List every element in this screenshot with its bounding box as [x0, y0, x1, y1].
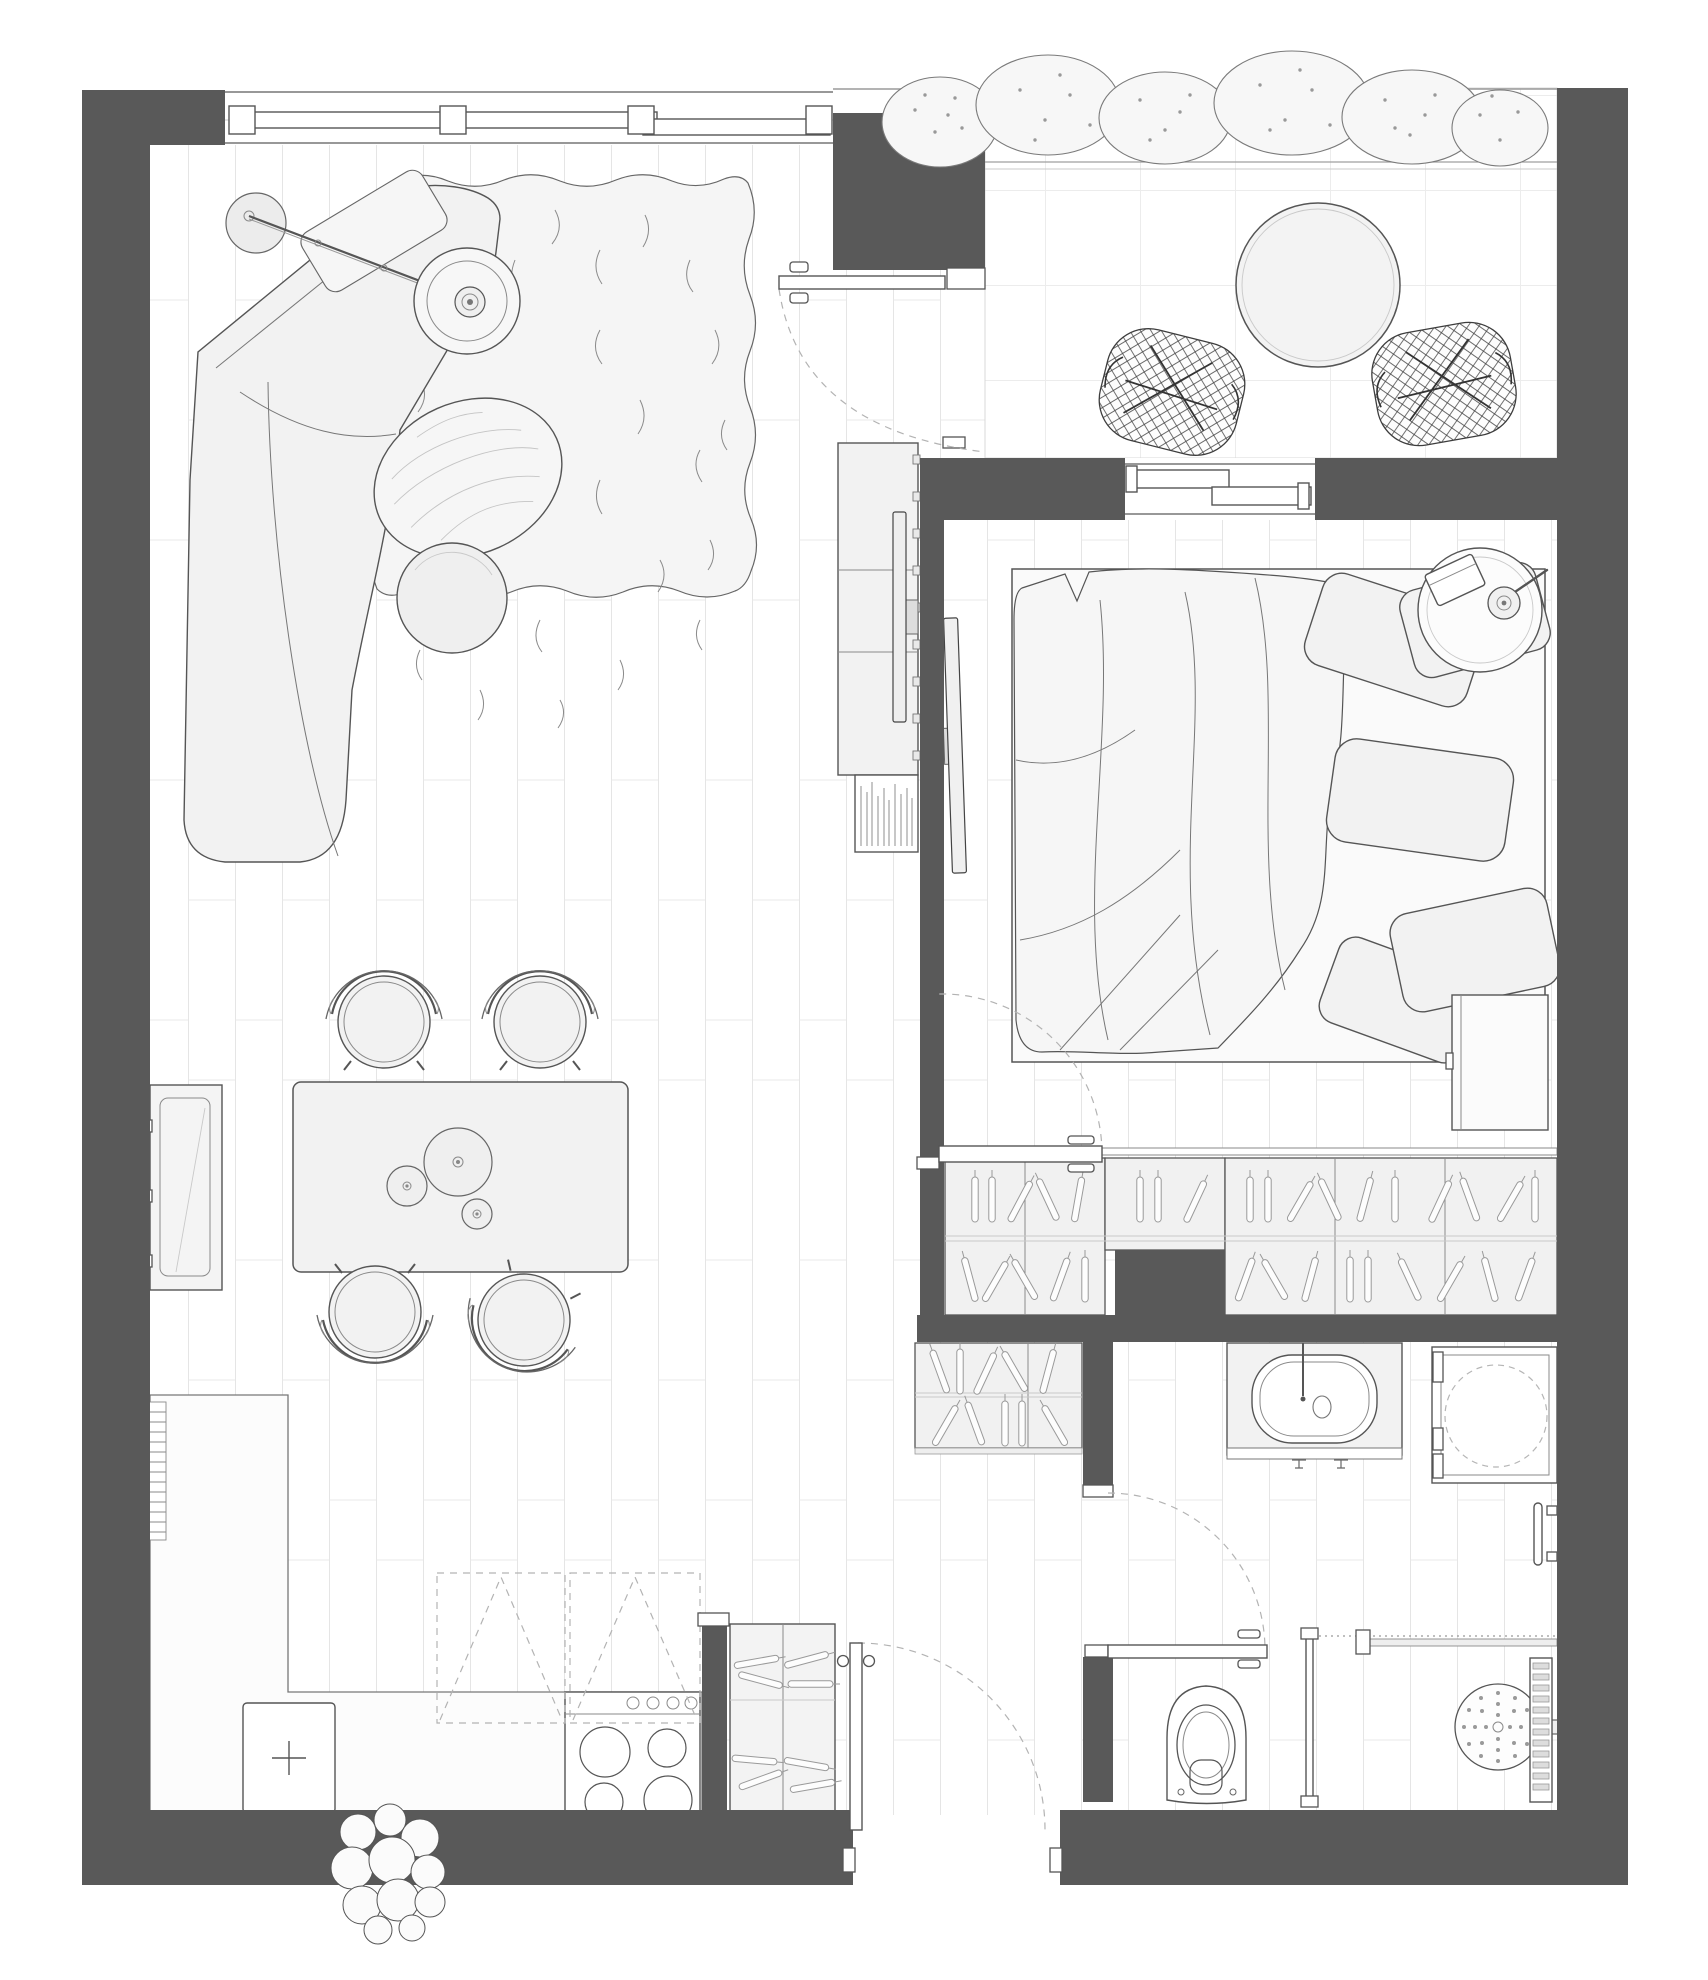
- wall-wc: [1083, 1657, 1113, 1802]
- washing-machine: [1432, 1347, 1557, 1483]
- door-knob: [838, 1656, 849, 1667]
- shower-screen-bar: [1360, 1639, 1557, 1646]
- door-handle: [1068, 1136, 1094, 1144]
- wall-under-wardrobe: [917, 1315, 1557, 1342]
- door-handle: [790, 262, 808, 272]
- round-side-table: [397, 543, 507, 653]
- wall-bottom-right: [1060, 1810, 1628, 1885]
- glass-partition: [1306, 1633, 1313, 1803]
- door-handle: [1238, 1630, 1260, 1638]
- wall-balcony-bedroom-right: [1315, 458, 1557, 520]
- book-shelf: [855, 775, 918, 852]
- door-leaf: [779, 276, 945, 289]
- lamp-shade: [414, 248, 520, 354]
- wall-heater-panel: [145, 1085, 222, 1290]
- floor-plan-drawing: [0, 0, 1708, 1980]
- vanity-basin: [1227, 1343, 1402, 1468]
- kitchen-plant: [331, 1804, 445, 1944]
- wall-wardrobe-pillar: [1115, 1250, 1225, 1342]
- wc: [1167, 1686, 1246, 1804]
- kitchen-sink: [243, 1703, 335, 1813]
- wall-hall-bath: [1083, 1341, 1113, 1492]
- tv-bracket: [906, 600, 918, 634]
- cooktop: [565, 1692, 700, 1827]
- lamp-base: [226, 193, 286, 253]
- hanger-icon: [788, 1681, 840, 1687]
- door-handle: [790, 293, 808, 303]
- bedroom: [940, 548, 1564, 1130]
- toilet: [1167, 1686, 1246, 1804]
- wall-balcony-bedroom-left: [920, 458, 1125, 520]
- wall-living-bedroom: [920, 520, 944, 1315]
- round-bistro-table: [1236, 203, 1400, 367]
- wall-kitchen-stub: [702, 1624, 727, 1828]
- door-leaf: [850, 1643, 862, 1830]
- radiator: [148, 1402, 166, 1540]
- tv-sideboard: [838, 443, 920, 775]
- door-handle: [1068, 1164, 1094, 1172]
- wall-right: [1557, 88, 1628, 1885]
- wall-top-left: [82, 90, 225, 145]
- wall-bottom-left: [82, 1810, 853, 1885]
- bedroom-window: [1125, 458, 1315, 520]
- door-handle: [1238, 1660, 1260, 1668]
- living-room-window: [225, 90, 833, 145]
- wardrobe-section: [1225, 1158, 1557, 1315]
- dresser-handle: [1446, 1053, 1453, 1069]
- door-leaf: [1108, 1645, 1267, 1658]
- drain-grate: [1530, 1658, 1552, 1802]
- hall-wardrobe: [915, 1342, 1082, 1454]
- entry-closet: [730, 1624, 842, 1826]
- wall-left: [82, 90, 150, 1885]
- floor-plan-page: [0, 0, 1708, 1980]
- dresser: [1446, 995, 1548, 1130]
- door-knob: [864, 1656, 875, 1667]
- tv: [893, 512, 906, 722]
- door-leaf: [939, 1146, 1102, 1162]
